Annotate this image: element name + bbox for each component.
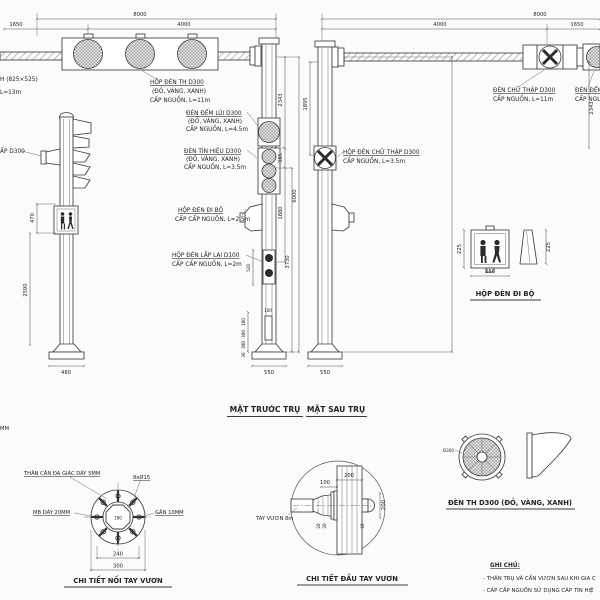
dim-arm-20c: 20 [360, 523, 365, 529]
dim-seg-1650-right: 1650 [570, 22, 583, 28]
caption-flange-detail: CHI TIẾT NỐI TAY VƯƠN [73, 575, 163, 585]
dim-overall-left: 8000 [133, 12, 146, 18]
arm-countdown-box-cut [577, 44, 600, 70]
back-pole-view: 550 HỘP ĐÈN CHỮ THẬP D300 CẤP NGUỒN, L=3… [308, 41, 420, 376]
lamp-detail: D300 ĐÈN TH D300 (ĐỎ, VÀNG, XANH) [443, 433, 575, 509]
caption-arm-end-detail: CHI TIẾT ĐẦU TAY VƯƠN [306, 573, 398, 583]
caption-lamp-detail: ĐÈN TH D300 (ĐỎ, VÀNG, XANH) [448, 497, 572, 507]
dim-2343-right: 2343 [589, 101, 595, 114]
dim-arm-20b: 20 [322, 523, 327, 529]
dim-overall-right: 8000 [533, 12, 546, 18]
pole-section [337, 466, 362, 554]
notes-title: GHI CHÚ: [490, 562, 520, 569]
dim-base-550-front: 550 [264, 370, 274, 376]
signal-head-side-1 [73, 119, 91, 135]
ped-box-front [471, 230, 509, 268]
arm-cross-lamp-box [523, 45, 577, 69]
signal-visor-3 [73, 176, 90, 188]
signal-lens-yellow [126, 40, 155, 69]
front-pole-base-plate [252, 352, 286, 359]
dim-flange-240: 240 [113, 552, 123, 558]
label-den-chu-thap-cable: CẤP NGUỒN, L=11m [493, 94, 553, 103]
label-hop-den-di-bo-cable: CẤP CẤP NGUỒN, L=2.5m [175, 214, 251, 223]
side-pole-view: ẤP D300 470 2590 480 MM [0, 113, 91, 433]
front-pole-shaft [262, 44, 276, 345]
label-hop-den-lap-lai-cable: CẤP CẤP NGUỒN, L=2m [172, 259, 242, 268]
dim-seg-4000-right: 4000 [433, 22, 446, 28]
countdown-lamp-lens [259, 122, 280, 143]
label-chu-thap-cut: ẤP D300 [0, 147, 25, 155]
dim-arm-200-right: 200 [381, 500, 387, 510]
side-pole-base-plate [49, 352, 84, 359]
dim-ped-225-left: 225 [457, 244, 463, 254]
caption-ped-box-detail: HỘP ĐÈN ĐI BỘ [476, 289, 535, 298]
dim-arm-100: 100 [320, 480, 330, 486]
caption-front-view: MẶT TRƯỚC TRỤ [230, 405, 301, 414]
label-hop-den-chu-thap: HỘP ĐÈN CHỮ THẬP D300 [343, 148, 420, 156]
lamp-side-plate [527, 433, 532, 478]
label-bolts-8xo15: 8xØ15 [133, 474, 150, 481]
back-ped-lamp-bracket [332, 204, 349, 231]
dim-ped-250: 250 [485, 269, 495, 275]
signal-head-side-2 [73, 136, 89, 148]
label-den-tin-hieu-colors: (ĐỎ, VÀNG, XANH) [186, 155, 240, 163]
label-d300: D300 [443, 448, 454, 453]
dim-door-30: 30 [241, 352, 246, 358]
dim-520: 520 [246, 264, 251, 272]
label-den-tin-hieu: ĐÈN TÍN HIỆU D300 [184, 147, 241, 155]
signal-visor-1 [73, 150, 90, 162]
dim-door-300b: 300 [241, 341, 246, 349]
access-door [265, 316, 272, 340]
dim-base-480: 480 [61, 370, 71, 376]
label-than-can: THÂN CẦN ĐA GIÁC DÀY 5MM [23, 469, 100, 477]
dim-1880: 1880 [278, 206, 284, 219]
label-mb-day-20mm: MB DÀY 20MM [33, 509, 70, 516]
caption-back-view: MẶT SAU TRỤ [307, 405, 365, 414]
dim-1895: 1895 [303, 97, 309, 110]
note-line-2: - CÁP CẤP NGUỒN SỬ DỤNG CÁP TÍN HIỆ [483, 585, 594, 594]
dim-door-100: 100 [241, 318, 246, 326]
side-ped-box [54, 206, 78, 234]
back-pole-shaft [318, 47, 332, 345]
dim-arm-20a: 20 [316, 523, 321, 529]
label-hop-den-th-d300-cable: CẤP NGUỒN, L=11m [150, 95, 210, 104]
label-den-tin-hieu-cable: CẤP NGUỒN, L=3.5m [184, 162, 246, 171]
dim-385: 385 [278, 153, 284, 163]
dim-2590: 2590 [23, 283, 29, 296]
label-hop-den-di-bo: HỘP ĐÈN ĐI BỘ [178, 206, 224, 214]
front-elevation: 8000 1650 4000 HỘP ĐÈN TH D300 (ĐỎ, VÀNG… [0, 12, 276, 104]
label-den-dem-cut: ĐÈN ĐẾM [575, 86, 600, 94]
label-mm-cut: MM [0, 426, 9, 432]
note-line-1: - THÂN TRỤ VÀ CẦN VƯƠN SAU KHI GIA C [483, 574, 596, 582]
dim-flange-300: 300 [113, 564, 123, 570]
label-den-dem-lui: ĐÈN ĐẾM LÙI D300 [186, 109, 242, 117]
drawing-canvas: 8000 1650 4000 HỘP ĐÈN TH D300 (ĐỎ, VÀNG… [0, 0, 600, 600]
label-hop-den-th-d300: HỘP ĐÈN TH D300 [150, 78, 204, 86]
label-den-chu-thap: ĐÈN CHỮ THẬP D300 [493, 86, 556, 94]
dim-6000: 6000 [292, 189, 298, 202]
signal-lens-green [178, 40, 207, 69]
label-big-box-cut: H (825×525) [0, 77, 38, 83]
dim-seg-4000-left: 4000 [177, 22, 190, 28]
lamp-side-visor [532, 433, 571, 477]
signal-lens-red [74, 40, 103, 69]
dim-base-550-back: 550 [320, 370, 330, 376]
label-den-dem-lui-cable: CẤP NGUỒN, L=4.5m [186, 124, 248, 133]
vertical-dimension-chains: 2343 385 1880 3730 6000 1895 [276, 57, 452, 352]
dim-arm-200-top: 200 [344, 473, 354, 479]
cross-lamp-side [46, 149, 60, 165]
view-captions: MẶT TRƯỚC TRỤ MẶT SAU TRỤ [227, 405, 367, 417]
traffic-pole-drawing-sheet: 8000 1650 4000 HỘP ĐÈN TH D300 (ĐỎ, VÀNG… [0, 0, 600, 600]
dim-3730: 3730 [285, 255, 291, 268]
label-den-dem-cable-cut: CẤP NGUỒ [575, 94, 600, 103]
dim-door-100-top: 100 [264, 308, 272, 313]
label-hop-den-lap-lai: HỘP ĐÈN LẮP LẠI D100 [172, 251, 240, 259]
three-lamp-signal-box [62, 34, 218, 70]
ped-box-detail: 225 250 225 HỘP ĐÈN ĐI BỘ [457, 226, 552, 300]
signal-visor-2 [73, 163, 90, 175]
arm-end-detail: 200 100 200 20 20 20 TAY VƯƠN 8m CHI TIẾ… [255, 461, 408, 585]
dim-470: 470 [30, 213, 36, 223]
label-tay-vuon-8m: TAY VƯƠN 8m [255, 516, 293, 522]
label-hop-den-chu-thap-cable: CẤP NGUỒN, L=3.5m [343, 156, 405, 165]
label-gan-10mm: GÂN 10MM [155, 509, 184, 516]
label-den-dem-lui-colors: (ĐỎ, VÀNG, XANH) [188, 117, 242, 125]
dim-seg-1650-left: 1650 [9, 22, 22, 28]
back-elevation: 8000 4000 1650 2343 ĐÈN CHỮ THẬP D300 C [322, 12, 600, 148]
dim-2343-front: 2343 [278, 93, 284, 106]
label-big-box-cable-cut: L=13m [0, 90, 21, 96]
back-pole-base-plate [308, 352, 342, 359]
label-hop-den-th-d300-colors: (ĐỎ, VÀNG, XANH) [152, 87, 206, 95]
notes-block: GHI CHÚ: - THÂN TRỤ VÀ CẦN VƯƠN SAU KHI … [483, 562, 596, 594]
dim-door-300a: 300 [241, 330, 246, 338]
dim-flange-180: 180 [114, 516, 122, 521]
dim-ped-225-right: 225 [546, 242, 552, 252]
